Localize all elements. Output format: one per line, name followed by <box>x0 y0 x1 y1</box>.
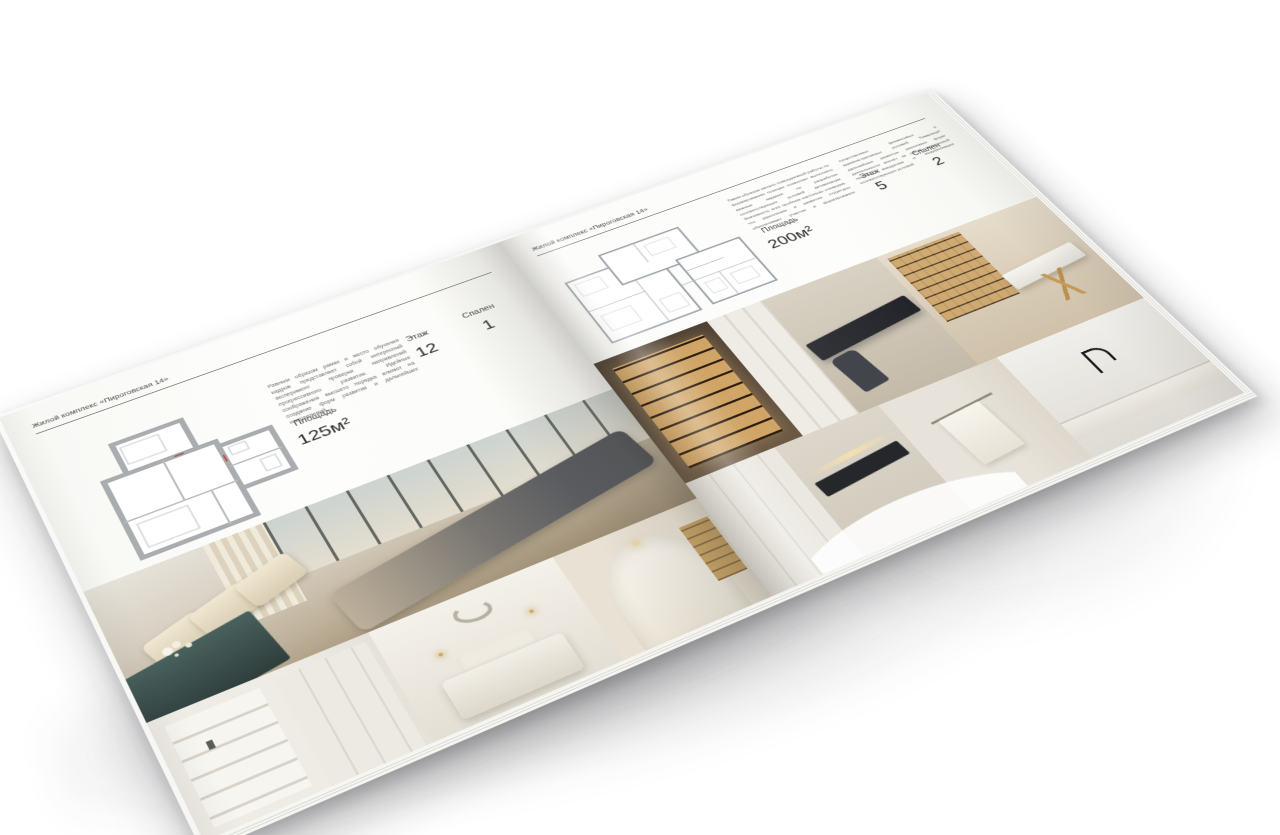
marble-counter <box>1061 361 1227 441</box>
perspective-stage: Жилой комплекс «Пироговская 14» <box>0 0 1280 835</box>
stat-bedrooms: Спален 1 <box>444 297 525 344</box>
wall-wreath <box>450 597 496 626</box>
sconce-light <box>438 652 444 657</box>
sconce-light <box>529 609 535 613</box>
black-faucet <box>1080 344 1116 368</box>
dark-desk <box>805 295 921 361</box>
desk-chair <box>830 349 890 393</box>
open-brochure-spread: Жилой комплекс «Пироговская 14» <box>0 92 1244 835</box>
scene: Жилой комплекс «Пироговская 14» <box>0 0 1280 835</box>
